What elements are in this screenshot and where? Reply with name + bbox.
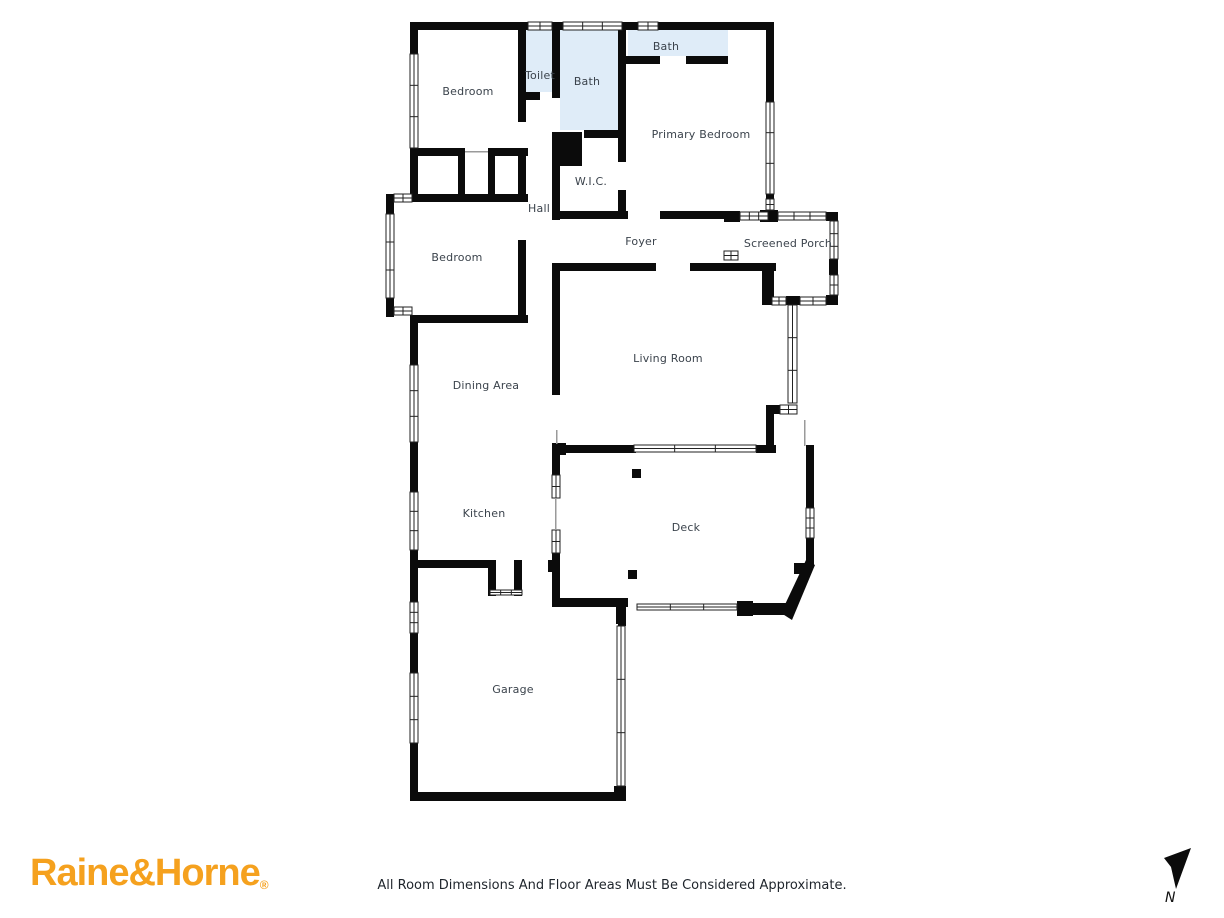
floor-plan: Bedroom Toilet Bath Bath Primary Bedroom… [0,0,1224,918]
wall [552,553,560,605]
wall [766,405,774,453]
wall [552,263,560,395]
floor-plan-page: Bedroom Toilet Bath Bath Primary Bedroom… [0,0,1224,918]
wall [552,22,560,98]
wall [829,259,838,275]
wall [414,560,490,568]
wall [632,469,641,478]
wall [520,92,540,100]
wall [686,56,728,64]
opening-line [556,430,558,444]
wall [552,132,560,220]
north-label: N [1165,890,1176,906]
wall [410,442,418,492]
opening-line [804,420,806,446]
room-label-bedroom-left: Bedroom [431,251,482,264]
wall [768,212,778,220]
room-label-bedroom-top: Bedroom [442,85,493,98]
wall [518,150,526,202]
wall [410,22,418,54]
opening-line [555,498,557,530]
room-label-garage: Garage [492,683,534,696]
wall [690,263,776,271]
wall [560,445,636,453]
room-label-dining-area: Dining Area [453,379,520,392]
wall [766,194,774,199]
wall [418,148,462,156]
room-label-deck: Deck [672,521,701,534]
wall [410,743,418,799]
room-label-primary-bedroom: Primary Bedroom [652,128,751,141]
wall [660,211,726,219]
disclaimer-text: All Room Dimensions And Floor Areas Must… [0,878,1224,893]
wall [766,22,774,102]
north-arrow-shape [1164,848,1191,889]
wall [658,22,774,30]
wall [584,130,618,138]
room-label-bath-ensuite: Bath [653,40,679,53]
wall [826,212,838,221]
room-label-living-room: Living Room [633,352,703,365]
wall [410,550,418,602]
wall [410,315,418,365]
wall [412,194,528,202]
wall [826,295,838,305]
bath-fill [522,30,552,92]
wall [556,211,628,219]
room-label-toilet: Toilet [524,69,555,82]
wall [386,194,394,214]
wall [616,604,626,624]
room-label-hall: Hall [528,202,550,215]
wall [488,148,495,202]
room-label-kitchen: Kitchen [463,507,506,520]
wall [518,240,526,317]
wall [410,22,528,30]
wall [724,211,740,222]
wall [410,315,528,323]
wall [786,296,800,305]
wall [628,570,637,579]
room-label-wic: W.I.C. [575,175,607,188]
wall [552,455,560,475]
wall [552,263,656,271]
wall [806,445,814,508]
wall [410,792,626,801]
north-arrow-icon: N [1145,842,1205,912]
room-label-screened-porch: Screened Porch [744,237,832,250]
wall [458,148,465,202]
wall [618,22,626,162]
wall [410,633,418,673]
room-label-foyer: Foyer [625,235,657,248]
wall [386,305,394,317]
room-label-bath-main: Bath [574,75,600,88]
opening-line [465,151,488,153]
wall [626,56,660,64]
